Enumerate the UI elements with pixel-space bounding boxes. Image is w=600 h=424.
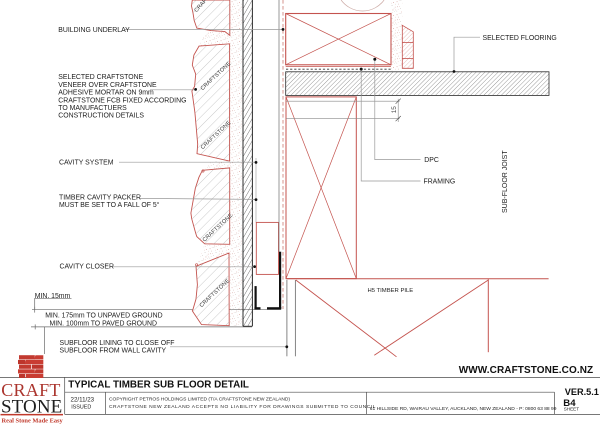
svg-text:SHEET: SHEET bbox=[564, 407, 580, 412]
svg-text:VENEER OVER CRAFTSTONE: VENEER OVER CRAFTSTONE bbox=[58, 82, 157, 89]
svg-text:ADHESIVE MORTAR ON 9mm: ADHESIVE MORTAR ON 9mm bbox=[58, 90, 154, 97]
svg-text:SUBFLOOR LINING TO CLOSE OFF: SUBFLOOR LINING TO CLOSE OFF bbox=[60, 340, 175, 347]
svg-text:SELECTED CRAFTSTONE: SELECTED CRAFTSTONE bbox=[58, 74, 143, 81]
svg-text:22/11/23: 22/11/23 bbox=[71, 396, 95, 403]
svg-text:BUILDING UNDERLAY: BUILDING UNDERLAY bbox=[58, 27, 130, 34]
svg-text:TIMBER CAVITY PACKER: TIMBER CAVITY PACKER bbox=[59, 195, 141, 202]
svg-text:DPC: DPC bbox=[424, 157, 439, 164]
svg-text:VER.5.1: VER.5.1 bbox=[565, 387, 599, 397]
svg-text:COPYRIGHT PETROS HOLDINGS LIMI: COPYRIGHT PETROS HOLDINGS LIMITED (T/A C… bbox=[109, 397, 290, 403]
svg-text:CAVITY SYSTEM: CAVITY SYSTEM bbox=[59, 160, 114, 167]
svg-text:15: 15 bbox=[391, 106, 398, 114]
svg-text:CRAFTSTONE FCB FIXED ACCORDING: CRAFTSTONE FCB FIXED ACCORDING bbox=[58, 97, 186, 104]
svg-text:Real Stone Made Easy: Real Stone Made Easy bbox=[2, 417, 64, 424]
svg-text:SELECTED FLOORING: SELECTED FLOORING bbox=[483, 35, 557, 42]
svg-text:H5 TIMBER PILE: H5 TIMBER PILE bbox=[368, 288, 414, 294]
svg-text:CONSTRUCTION DETAILS: CONSTRUCTION DETAILS bbox=[58, 113, 144, 120]
svg-text:CAVITY CLOSER: CAVITY CLOSER bbox=[60, 263, 115, 270]
svg-text:SUBFLOOR FROM WALL CAVITY: SUBFLOOR FROM WALL CAVITY bbox=[60, 348, 167, 355]
svg-text:SUB-FLOOR JOIST: SUB-FLOOR JOIST bbox=[502, 150, 509, 213]
svg-text:FRAMING: FRAMING bbox=[424, 179, 456, 186]
svg-text:ISSUED: ISSUED bbox=[71, 404, 91, 410]
svg-text:MUST BE SET TO A FALL OF 5°: MUST BE SET TO A FALL OF 5° bbox=[59, 201, 160, 209]
svg-text:MIN. 175mm TO UNPAVED GROUND: MIN. 175mm TO UNPAVED GROUND bbox=[45, 312, 162, 319]
svg-text:MIN. 100mm TO PAVED GROUND: MIN. 100mm TO PAVED GROUND bbox=[50, 320, 157, 327]
svg-text:61 HILLSIDE RD, WAIRAU VALLEY,: 61 HILLSIDE RD, WAIRAU VALLEY, AUCKLAND,… bbox=[370, 406, 557, 412]
svg-text:TYPICAL TIMBER SUB FLOOR DETAI: TYPICAL TIMBER SUB FLOOR DETAIL bbox=[68, 380, 249, 391]
svg-text:TO MANUFACTUERS: TO MANUFACTUERS bbox=[58, 105, 127, 112]
svg-text:WWW.CRAFTSTONE.CO.NZ: WWW.CRAFTSTONE.CO.NZ bbox=[459, 365, 594, 376]
svg-text:CRAFTSTONE NEW ZEALAND ACCEPTS: CRAFTSTONE NEW ZEALAND ACCEPTS NO LIABIL… bbox=[109, 404, 376, 410]
